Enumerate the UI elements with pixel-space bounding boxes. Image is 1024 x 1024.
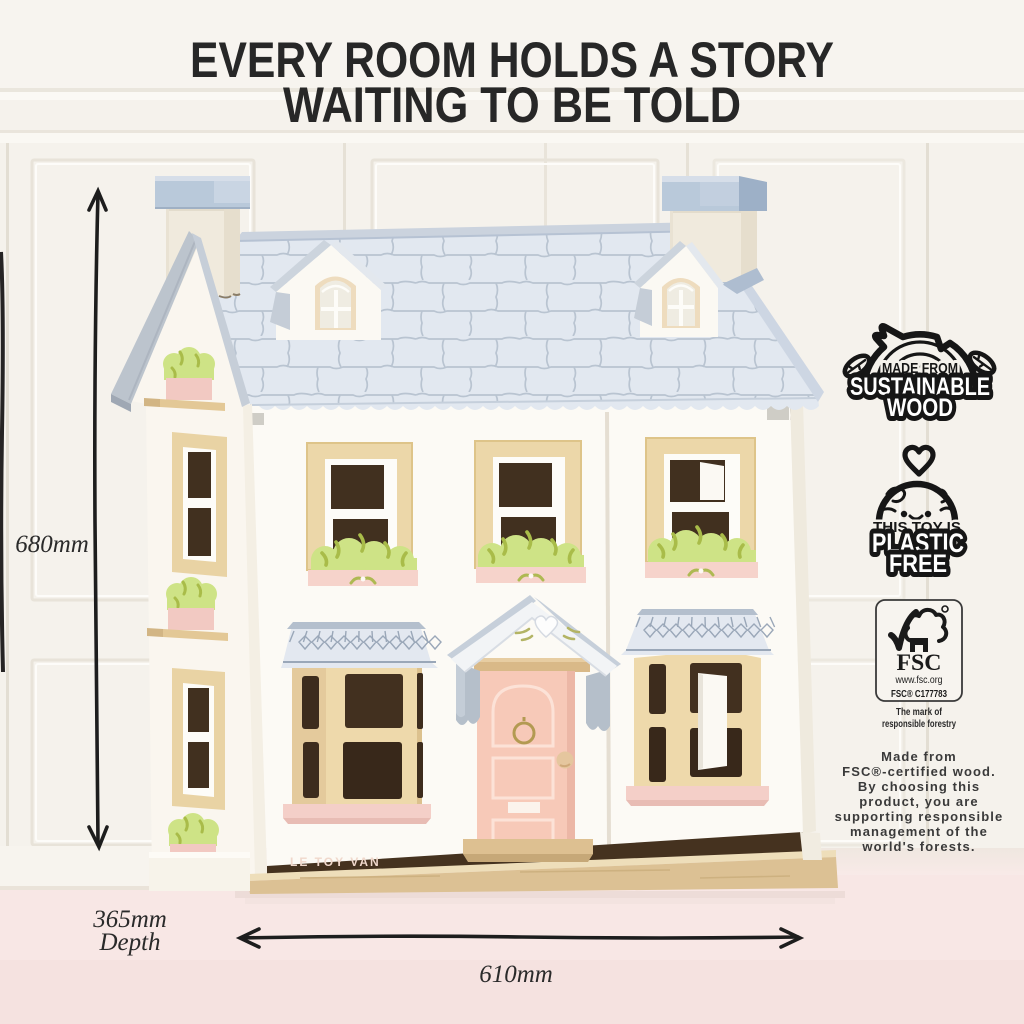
svg-text:FSC® C177783: FSC® C177783	[891, 689, 947, 700]
svg-text:FSC®-certified wood.: FSC®-certified wood.	[842, 764, 996, 779]
svg-text:680mm: 680mm	[15, 531, 89, 558]
svg-text:management of the: management of the	[850, 824, 988, 839]
svg-text:The mark of: The mark of	[896, 706, 942, 718]
svg-text:supporting responsible: supporting responsible	[835, 809, 1004, 824]
svg-text:WOOD: WOOD	[887, 394, 953, 422]
svg-text:world's forests.: world's forests.	[861, 839, 975, 854]
svg-text:www.fsc.org: www.fsc.org	[895, 674, 943, 686]
svg-text:product, you are: product, you are	[859, 794, 978, 809]
svg-text:responsible forestry: responsible forestry	[882, 718, 956, 730]
svg-text:By choosing this: By choosing this	[858, 779, 980, 794]
svg-text:LE TOY VAN: LE TOY VAN	[290, 855, 381, 869]
svg-text:610mm: 610mm	[479, 961, 553, 988]
svg-text:FREE: FREE	[889, 550, 947, 578]
svg-text:FSC: FSC	[897, 650, 942, 675]
svg-text:Depth: Depth	[98, 929, 160, 956]
svg-text:WAITING TO BE TOLD: WAITING TO BE TOLD	[283, 77, 741, 133]
svg-text:Made from: Made from	[881, 749, 957, 764]
